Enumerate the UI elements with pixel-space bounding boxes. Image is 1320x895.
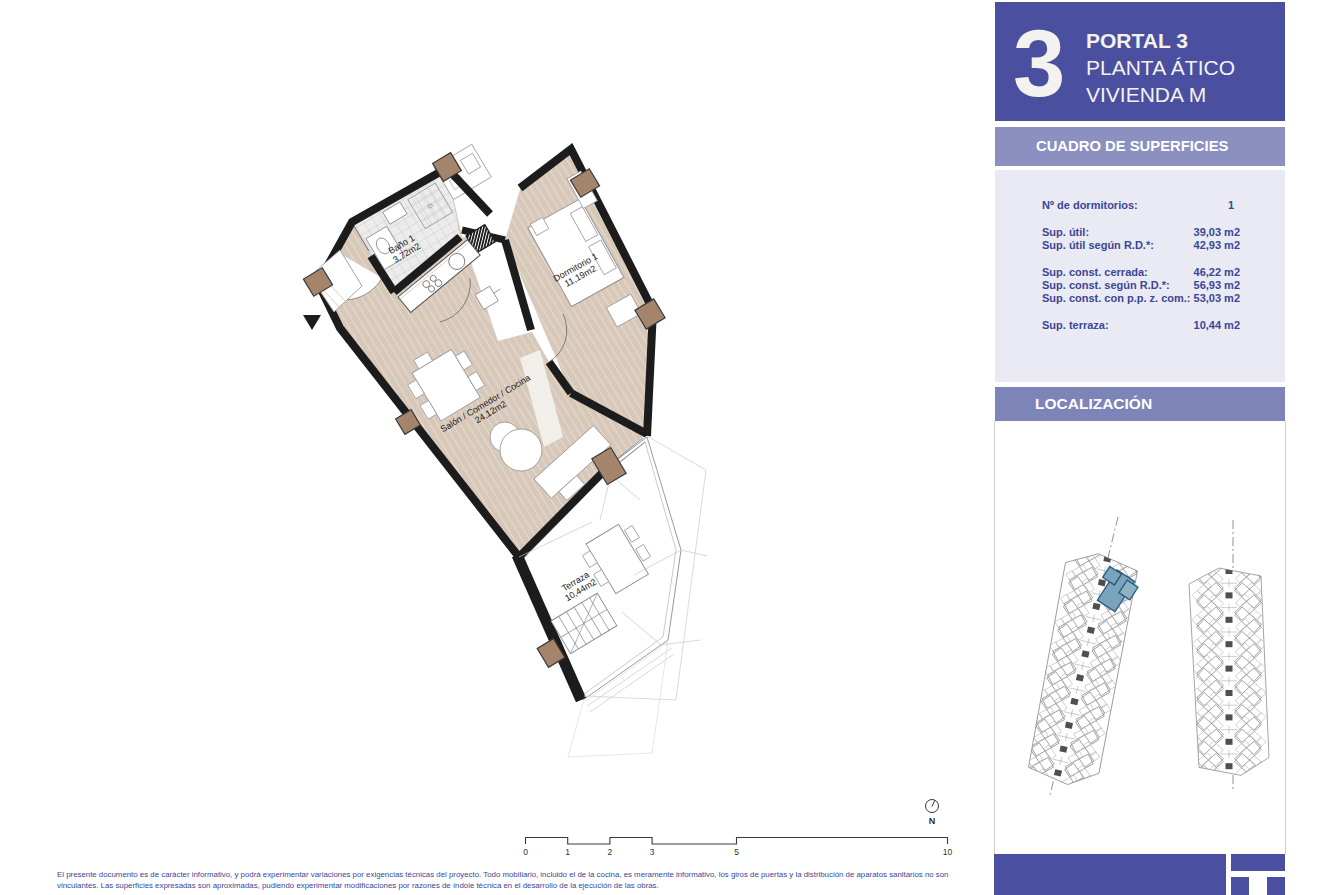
svg-text:10: 10 (943, 847, 953, 857)
svg-text:1: 1 (565, 847, 570, 857)
svg-text:5: 5 (734, 847, 739, 857)
svg-text:N: N (929, 816, 936, 826)
svg-text:0: 0 (523, 847, 528, 857)
svg-text:3: 3 (650, 847, 655, 857)
svg-text:2: 2 (608, 847, 613, 857)
